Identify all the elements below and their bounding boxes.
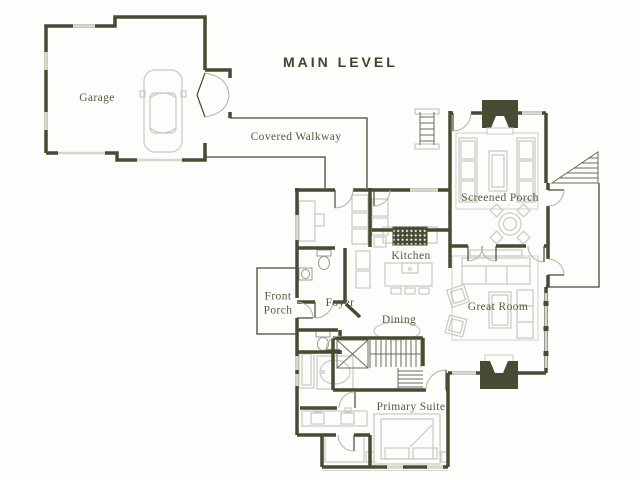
porch-fireplace-icon [482,100,518,134]
stair-platform [415,109,439,114]
stair-treads [370,340,423,390]
car-icon [140,70,186,152]
powder-toilet-icon [317,250,331,270]
room-label-screened-porch: Screened Porch [461,192,538,204]
vanity-sinks [302,408,367,426]
room-label-covered-walkway: Covered Walkway [251,131,342,143]
walls [46,17,548,467]
room-label-garage: Garage [79,92,115,104]
floor-plan-page: MAIN LEVEL Garage Covered Walkway Screen… [0,0,640,480]
deck-corner-stairs [552,152,598,183]
room-label-foyer: Foyer [326,297,355,309]
stair-platform [415,144,439,149]
covered-walkway-lines [206,118,367,188]
room-label-front-porch: Front Porch [253,290,303,319]
room-label-primary-suite: Primary Suite [377,401,446,413]
great-room-sofa-set [445,250,538,340]
walk-in-closet [325,438,364,462]
great-room-fireplace-icon [480,355,518,389]
outdoor-dining-table [490,204,530,244]
room-label-dining: Dining [382,314,416,326]
desk-icon [299,201,324,241]
primary-toilet-icon [316,331,330,351]
powder-sink-icon [299,268,312,280]
deck-outline [548,183,599,287]
floor-plan-drawing [0,0,640,480]
room-label-great-room: Great Room [468,301,529,313]
page-title: MAIN LEVEL [283,54,398,70]
bar-stools [391,288,429,294]
porch-entry-stairs [420,112,434,145]
bathtub-icon [299,351,353,389]
bed-icon [366,414,447,464]
range-icon [393,227,427,245]
room-label-kitchen: Kitchen [391,250,430,262]
